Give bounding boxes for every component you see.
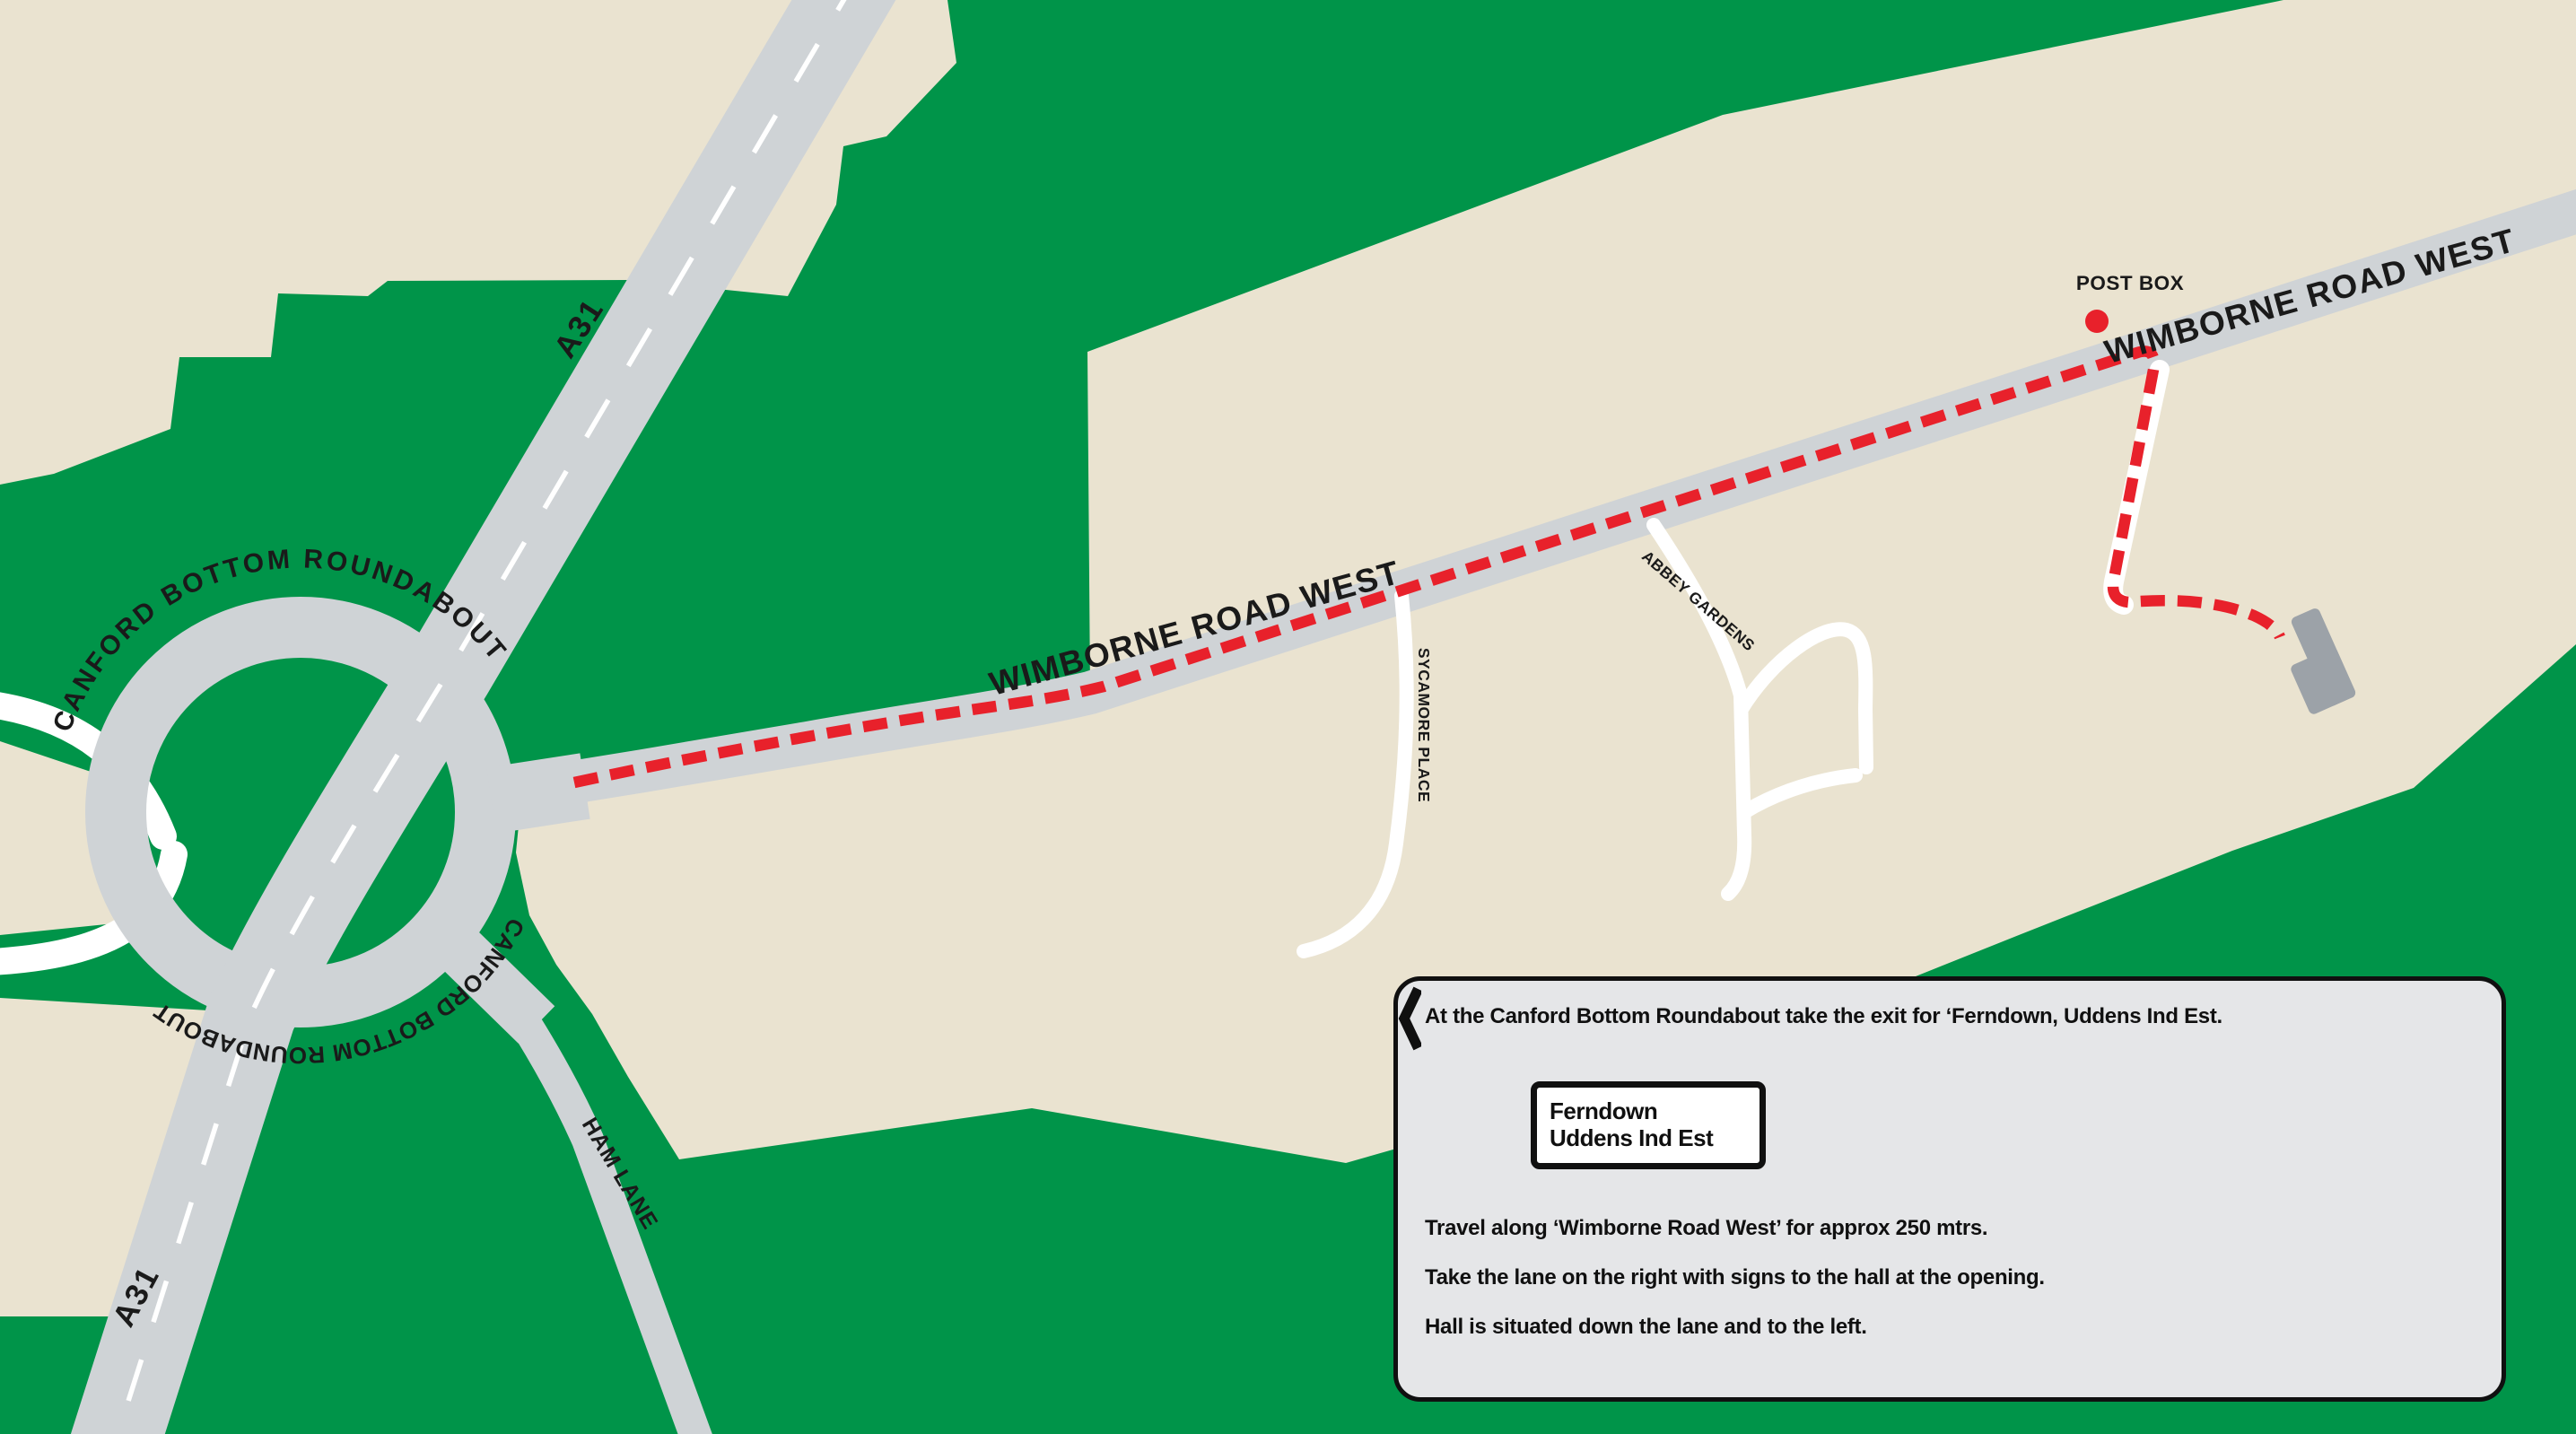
direction-step-3: Take the lane on the right with signs to… bbox=[1425, 1265, 2475, 1290]
direction-step-1: At the Canford Bottom Roundabout take th… bbox=[1425, 1004, 2475, 1029]
sign-left-chevron-icon bbox=[1398, 981, 1421, 1056]
post-box-label: POST BOX bbox=[2076, 272, 2184, 294]
wimborne-road-flare bbox=[492, 786, 585, 800]
direction-step-2: Travel along ‘Wimborne Road West’ for ap… bbox=[1425, 1216, 2475, 1241]
sign-destination-2: Uddens Ind Est bbox=[1550, 1125, 1713, 1152]
ferndown-road-sign: Ferndown Uddens Ind Est bbox=[1531, 1081, 1766, 1169]
post-box-dot bbox=[2085, 310, 2109, 333]
map-stage: POST BOX CANFORD BOTTOM ROUNDABOUT CANFO… bbox=[0, 0, 2576, 1434]
directions-panel: At the Canford Bottom Roundabout take th… bbox=[1393, 976, 2506, 1402]
direction-steps: Travel along ‘Wimborne Road West’ for ap… bbox=[1425, 1216, 2475, 1340]
sycamore-place-label: SYCAMORE PLACE bbox=[1415, 648, 1433, 802]
sign-destination-1: Ferndown bbox=[1550, 1098, 1713, 1125]
sign-destinations: Ferndown Uddens Ind Est bbox=[1550, 1098, 1713, 1152]
direction-step-4: Hall is situated down the lane and to th… bbox=[1425, 1315, 2475, 1340]
